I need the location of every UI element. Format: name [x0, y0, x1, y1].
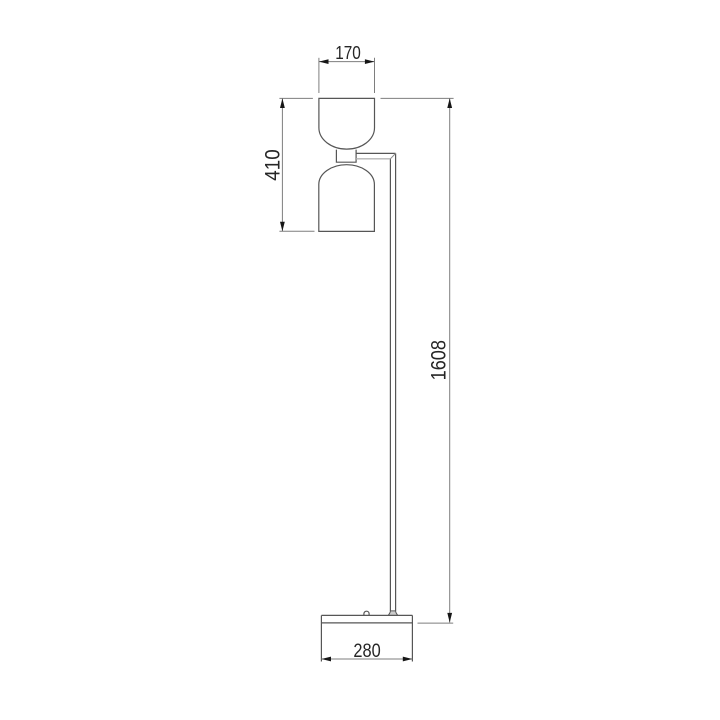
svg-text:280: 280 [353, 640, 380, 662]
svg-text:1608: 1608 [428, 340, 451, 380]
svg-text:170: 170 [335, 43, 361, 63]
svg-text:410: 410 [262, 149, 285, 180]
